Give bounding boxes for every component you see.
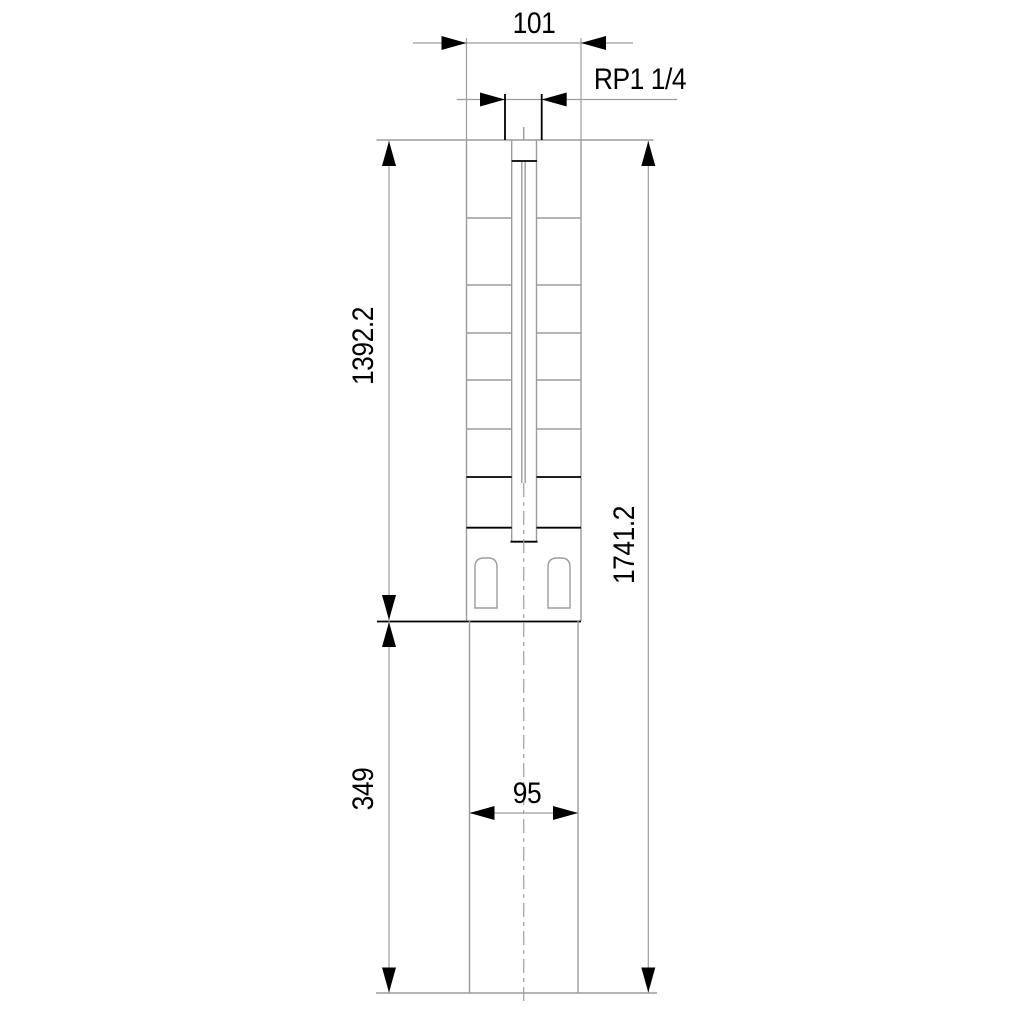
cable-guard-hole-right	[548, 558, 570, 608]
arrow-thread-right	[542, 93, 567, 107]
dim-label-total-length: 1741.2	[610, 506, 640, 584]
arrow-motorlength-bottom	[382, 968, 396, 993]
dim-label-thread: RP1 1/4	[594, 65, 686, 95]
drawing-canvas: 101 RP1 1/4 1392.2 1741.2 349 95	[0, 0, 1024, 1024]
dim-label-pump-length: 1392.2	[349, 307, 379, 385]
arrow-pumplength-top	[382, 141, 396, 166]
arrow-pumplength-bottom	[382, 595, 396, 620]
dim-label-motor-length: 349	[349, 768, 379, 811]
arrow-totallength-top	[641, 141, 655, 166]
arrow-motorwidth-right	[553, 806, 578, 820]
arrow-topwidth-left	[442, 36, 467, 50]
stage-lines-gray	[467, 218, 582, 429]
dim-label-top-width: 101	[513, 9, 556, 39]
cable-guard-hole-left	[475, 558, 497, 608]
arrow-motorlength-top	[382, 622, 396, 647]
arrow-totallength-bottom	[641, 968, 655, 993]
pump-outline-drawing	[0, 0, 1024, 1024]
arrow-topwidth-right	[581, 36, 606, 50]
dim-label-motor-width: 95	[513, 779, 541, 809]
arrow-motorwidth-left	[470, 806, 495, 820]
arrow-thread-left	[480, 93, 505, 107]
